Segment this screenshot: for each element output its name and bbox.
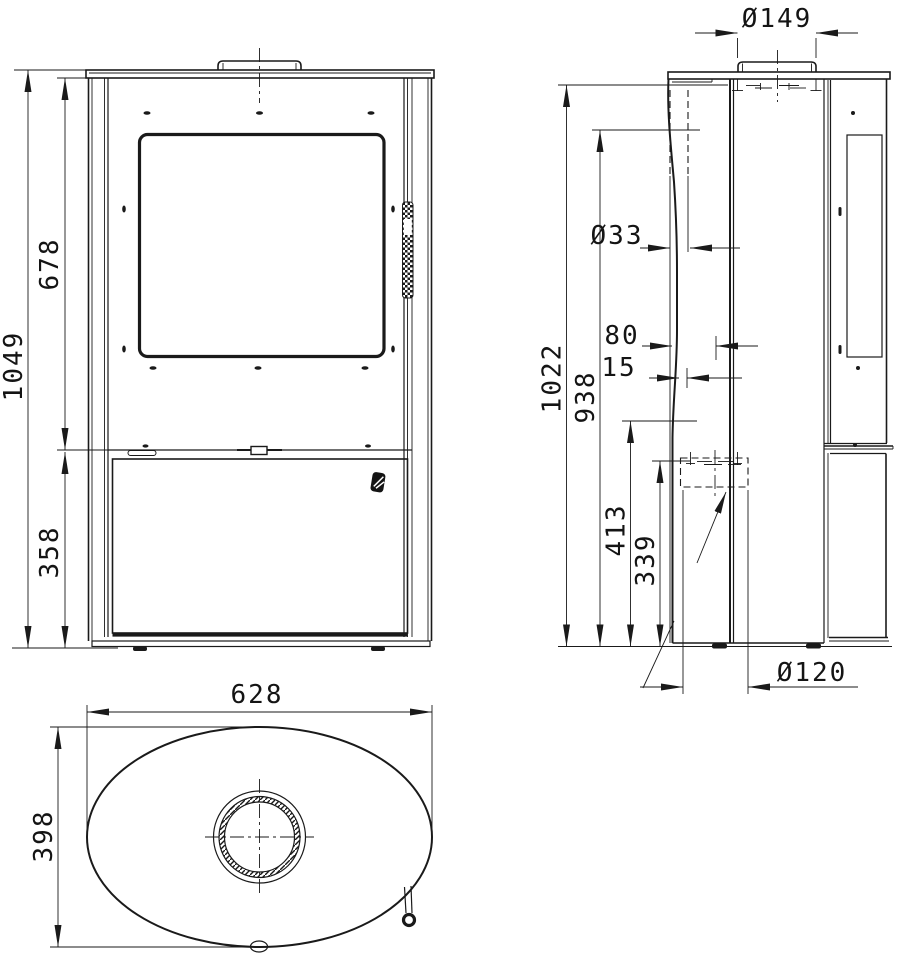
side-view: Ø149 Ø33 80 15 1022 [538,4,894,694]
dim-label-d120: Ø120 [777,658,848,688]
dim-label-413: 413 [602,504,632,557]
dim-label-339: 339 [631,534,661,587]
top-flue-opening [205,779,314,897]
front-door-glass-window [140,135,385,357]
dim-label-d33: Ø33 [591,221,644,251]
technical-drawing-page: 1049 678 358 [0,0,904,964]
dim-front-lower-height: 358 [35,452,65,648]
front-flue-collar [218,48,301,103]
outlet-leader-arrow [697,492,726,563]
side-flue-collar [732,50,822,102]
side-top-plate [668,72,890,82]
side-baffle-hidden-lines [746,83,806,90]
dim-side-hole-diameter: Ø33 [591,221,740,251]
dim-label-678: 678 [35,238,65,291]
front-ash-lip [108,447,412,456]
dim-label-d149: Ø149 [742,4,813,34]
front-door-latch [251,447,267,455]
outlet-leader-line [643,621,674,688]
dim-label-80: 80 [604,321,639,351]
dim-front-upper-height: 678 [35,78,133,450]
front-door-handle [403,202,414,298]
front-logo-badge [370,472,386,493]
front-plinth [92,641,430,651]
dim-label-1022: 1022 [538,343,568,414]
dim-side-flue-diameter: Ø149 [695,4,858,58]
dim-label-938: 938 [571,371,601,424]
dim-label-628: 628 [231,680,284,710]
dim-label-358: 358 [35,526,65,579]
top-view: 628 398 [29,680,432,952]
dim-side-offset-15: 15 [601,353,742,388]
front-top-plate [86,70,434,78]
dim-label-1049: 1049 [0,331,29,402]
front-screw-marks [122,111,395,447]
front-view: 1049 678 358 [0,48,434,651]
dim-label-15: 15 [601,353,636,383]
dim-label-398: 398 [29,810,59,863]
stove-dimension-drawing: 1049 678 358 [0,0,904,964]
dim-side-339: 339 [631,461,690,647]
front-lower-door [113,459,408,635]
side-rear-panel [824,79,893,641]
